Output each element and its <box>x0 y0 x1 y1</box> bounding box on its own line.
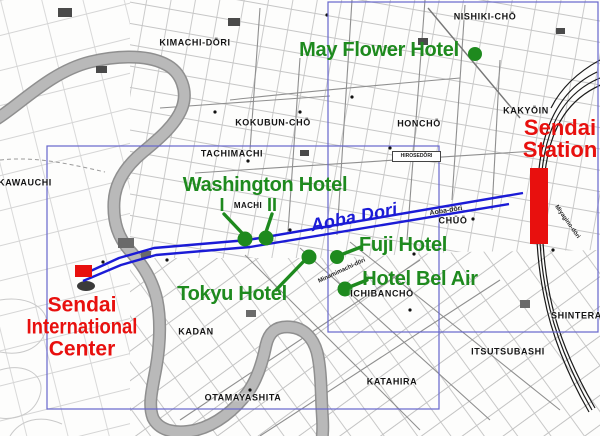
district-label-tachimachi: TACHIMACHI <box>201 150 263 159</box>
district-label-nishiki-cho: NISHIKI-CHŌ <box>454 13 517 22</box>
district-label-chuo: CHŪŌ <box>439 217 468 226</box>
hotel-label-washington-2: II <box>267 196 277 214</box>
hotel-label-tokyu: Tokyu Hotel <box>177 284 287 304</box>
district-label-kadan: KADAN <box>178 328 214 337</box>
district-label-machi: MACHI <box>234 202 262 210</box>
district-label-otamayashita: OTAMAYASHITA <box>205 394 282 403</box>
district-label-honcho: HONCHŌ <box>397 120 441 129</box>
tokyu-hotel-dot <box>302 250 317 265</box>
washington-hotel-2-dot <box>259 231 274 246</box>
station-label-line1: Sendai <box>524 117 596 139</box>
street-label-hirose-dori: HIROSEDŌRI <box>392 151 441 162</box>
district-label-ichibancho: ICHIBANCHŌ <box>350 290 414 299</box>
district-label-kokubun-cho: KOKUBUN-CHŌ <box>235 119 311 128</box>
may-flower-hotel-dot <box>468 47 482 61</box>
washington-hotel-1-dot <box>238 232 253 247</box>
intl-center-label-line3: Center <box>49 339 116 360</box>
intl-center-marker <box>75 265 92 277</box>
intl-center-label-line2: International <box>27 317 138 338</box>
district-label-kimachi-dori: KIMACHI-DŌRI <box>159 39 230 48</box>
hotel-label-bel-air: Hotel Bel Air <box>362 269 477 289</box>
district-label-shintera: SHINTERA <box>551 312 600 321</box>
hotel-label-washington-1: I <box>219 196 224 214</box>
district-label-itsutsubashi: ITSUTSUBASHI <box>471 348 545 357</box>
hotel-label-fuji: Fuji Hotel <box>359 235 447 255</box>
district-label-katahira: KATAHIRA <box>367 378 417 387</box>
district-label-kawauchi: KAWAUCHI <box>0 179 52 188</box>
sendai-map: KIMACHI-DŌRI NISHIKI-CHŌ KOKUBUN-CHŌ HON… <box>0 0 600 436</box>
intl-center-label-line1: Sendai <box>48 295 117 316</box>
fuji-hotel-dot <box>330 250 344 264</box>
station-label-line2: Station <box>523 139 598 161</box>
sendai-station-marker <box>530 168 548 244</box>
hotel-label-washington: Washington Hotel <box>183 175 347 195</box>
map-canvas <box>0 0 600 436</box>
hotel-label-may-flower: May Flower Hotel <box>299 40 459 60</box>
